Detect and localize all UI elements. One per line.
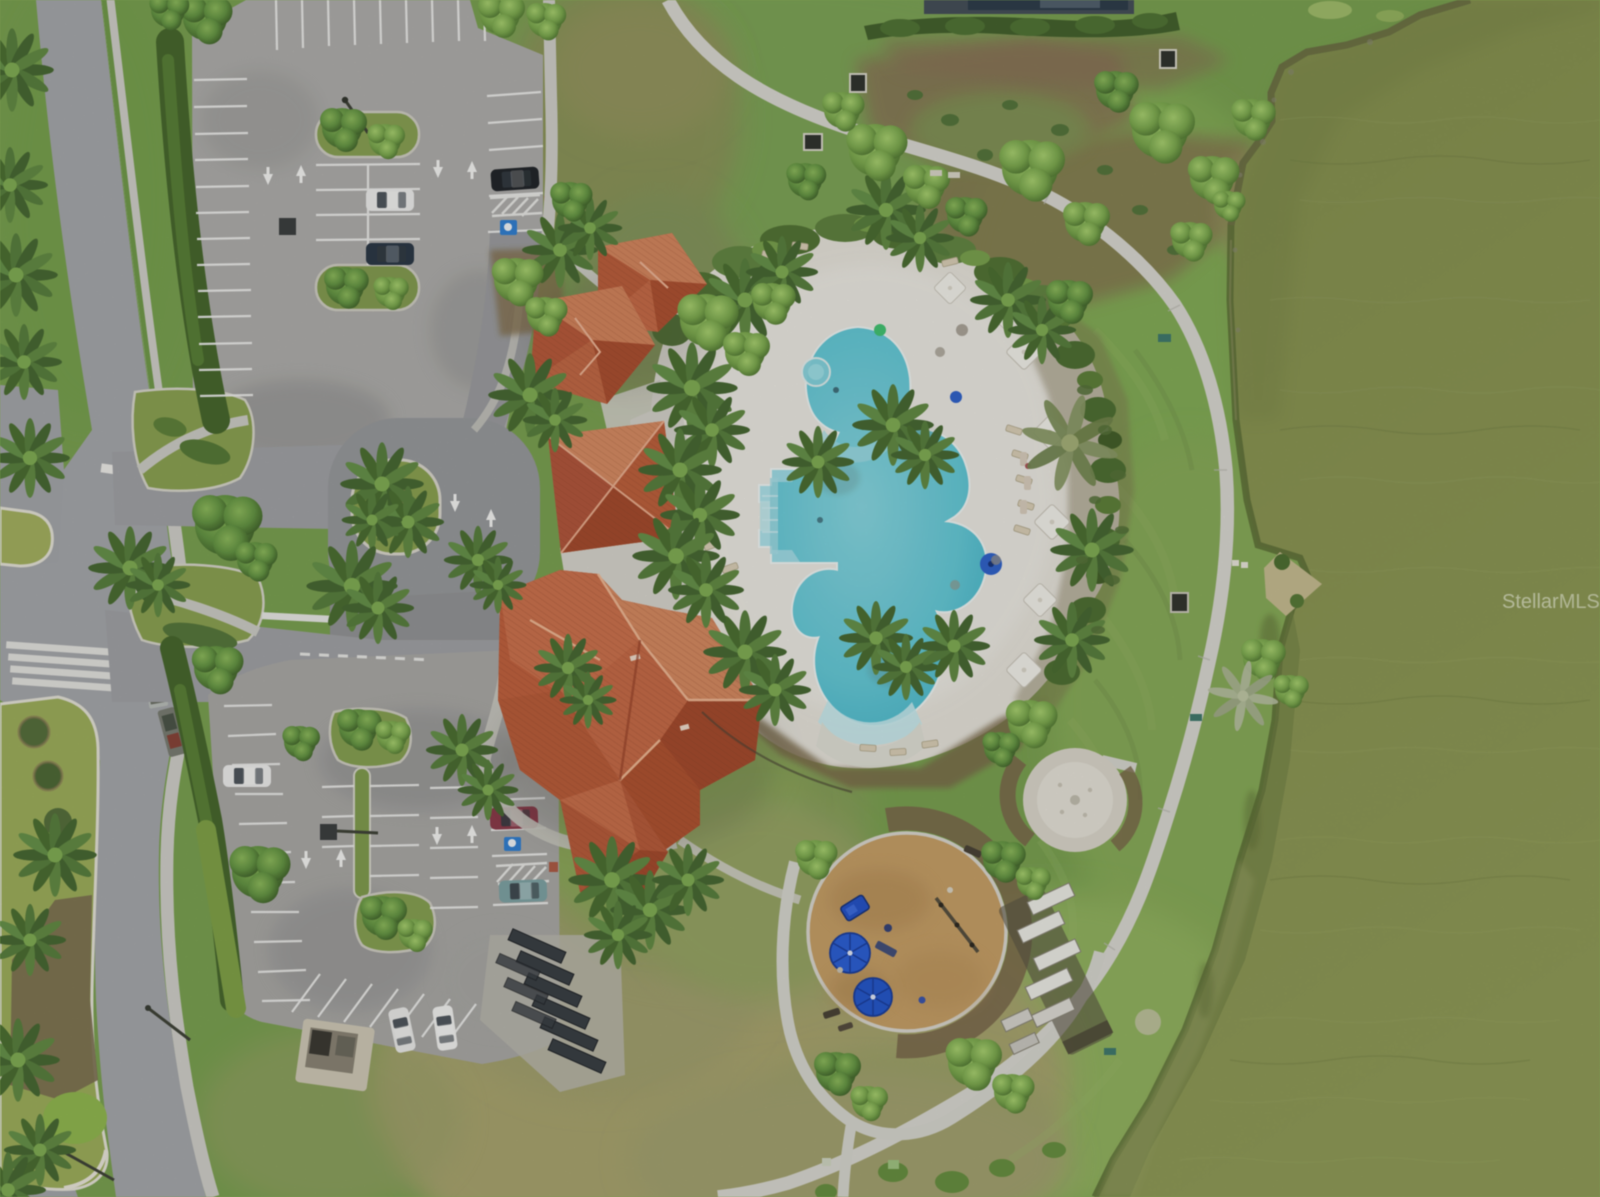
svg-text:StellarMLS: StellarMLS [1502, 591, 1600, 613]
